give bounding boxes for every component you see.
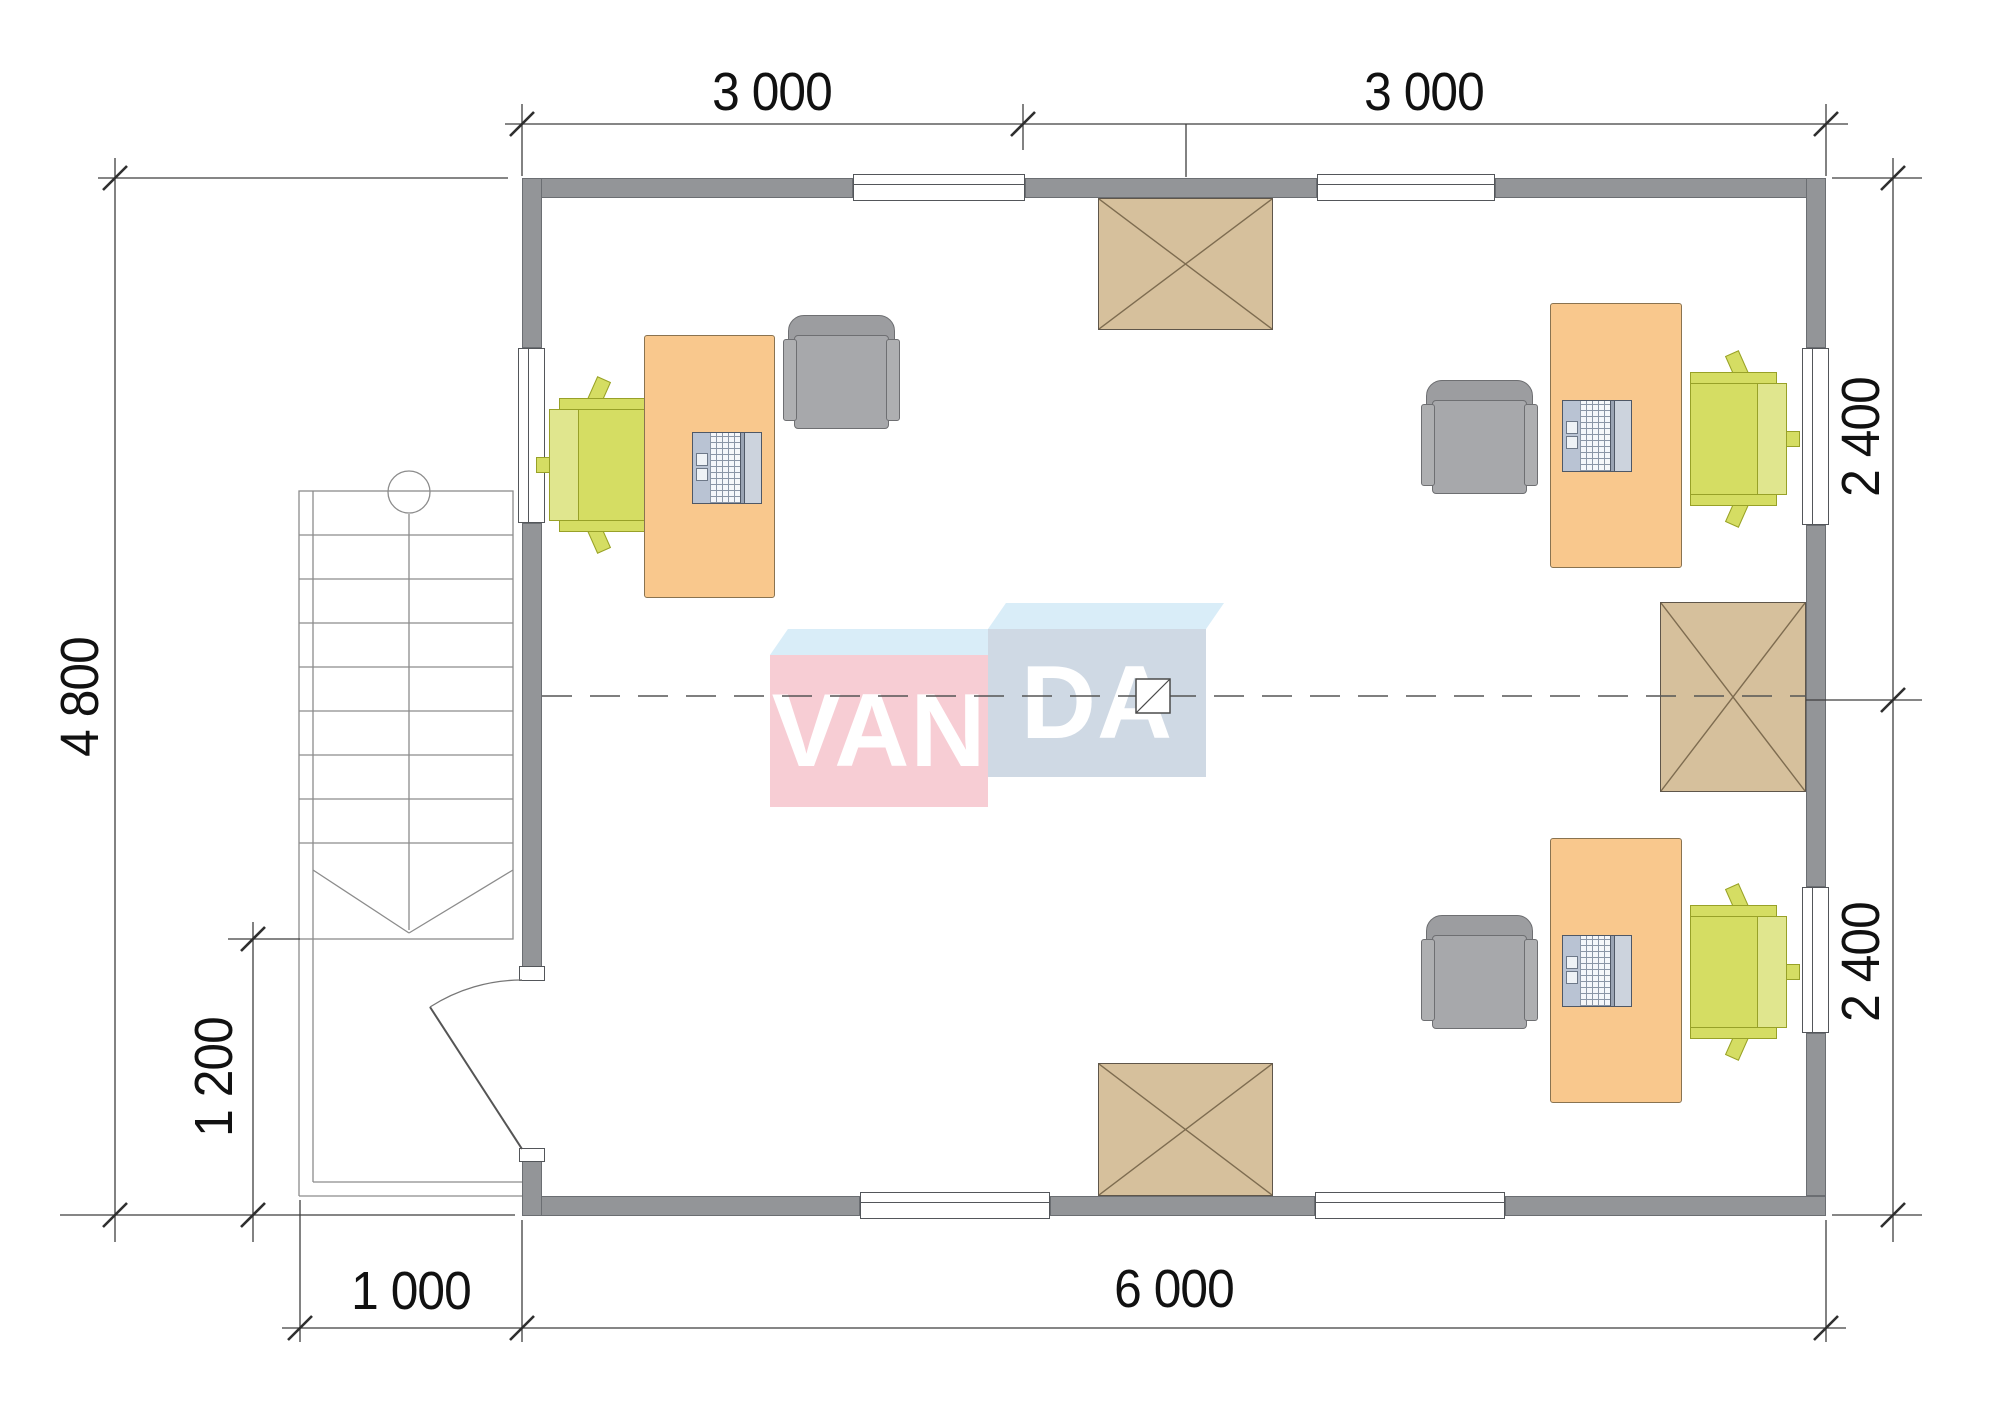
- entry-porch: [299, 939, 522, 1196]
- center-axis-line: [542, 679, 1806, 713]
- staircase: [299, 471, 513, 939]
- linework-overlay: [0, 0, 2000, 1410]
- floor-plan: VAN DA: [0, 0, 2000, 1410]
- entry-door: [430, 980, 522, 1149]
- door-leaf: [430, 1007, 522, 1149]
- door-swing-arc: [430, 980, 522, 1007]
